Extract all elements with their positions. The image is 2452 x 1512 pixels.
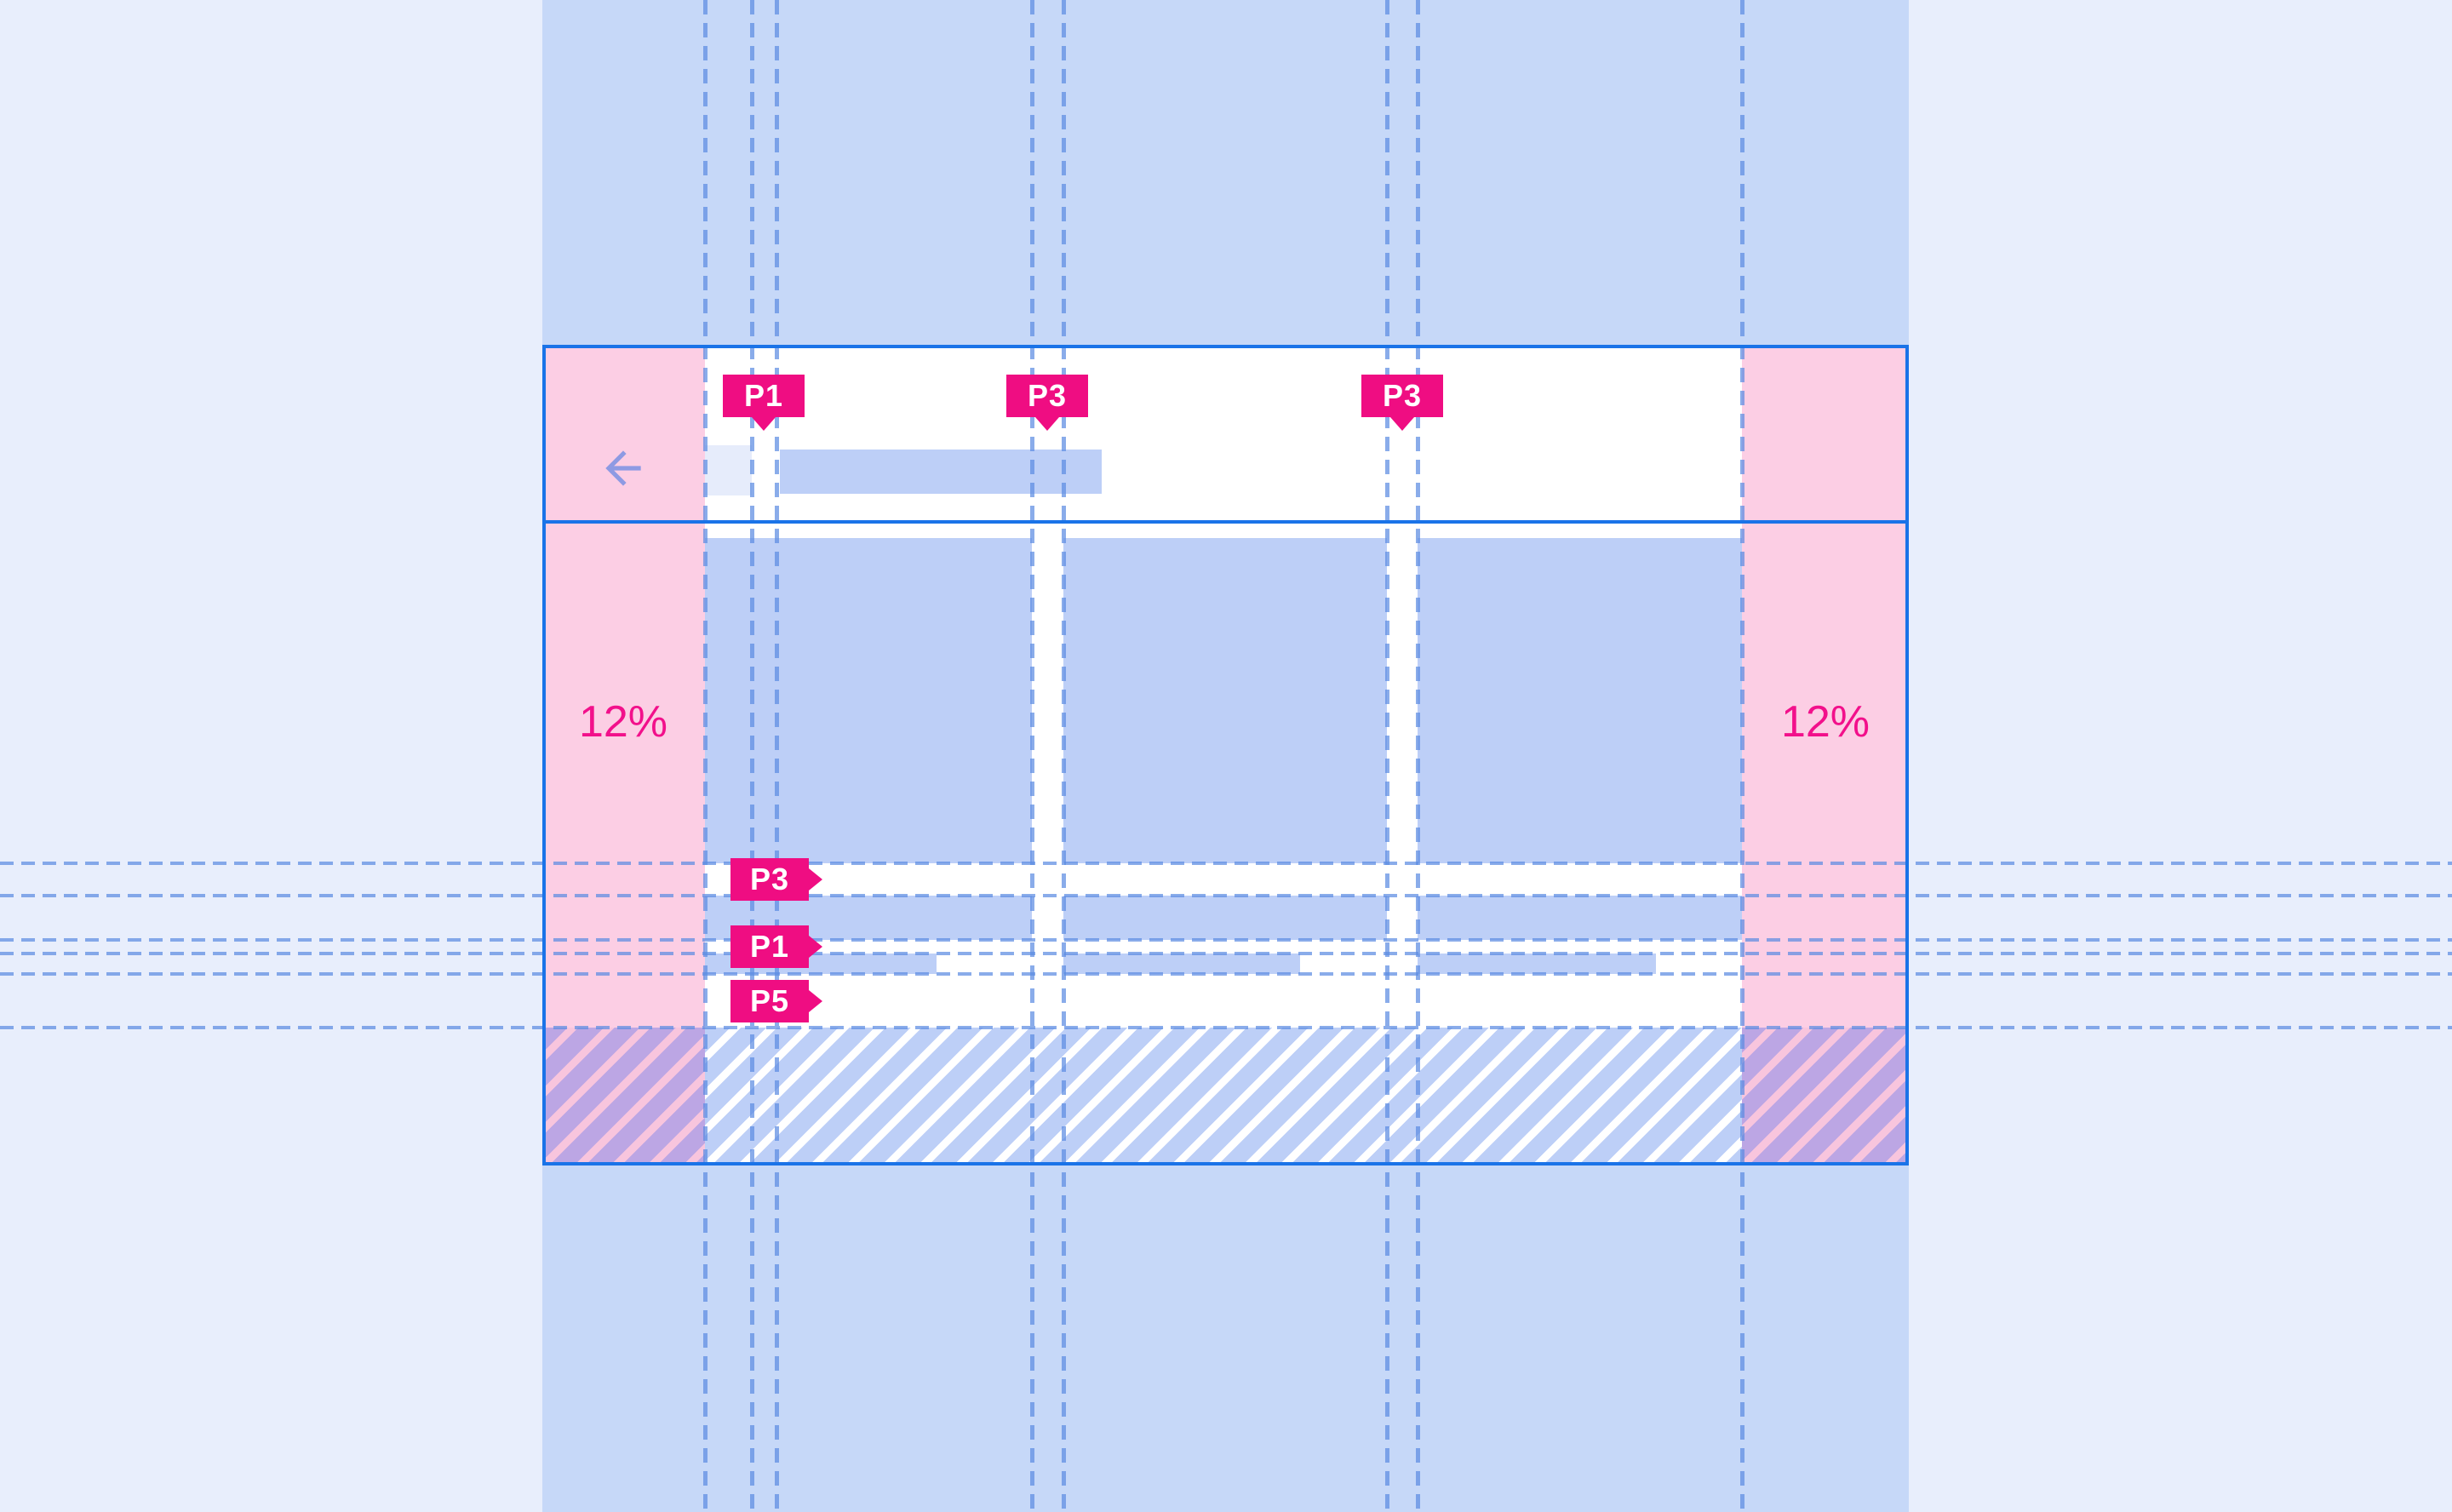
title-placeholder [780, 450, 1102, 494]
vertical-guide-icon-end [750, 0, 754, 1512]
content-card-placeholder-3 [1418, 538, 1742, 863]
left-margin-percent-label: 12% [579, 696, 667, 747]
content-card-placeholder-2 [1063, 538, 1387, 863]
layout-spec-canvas: 12% 12% P1 P3 P3 P3 P1 P5 [0, 0, 2452, 1512]
vertical-guide-margin-right [1740, 0, 1744, 1512]
padding-annotation-p5-row: P5 [730, 980, 809, 1022]
padding-annotation-p3-row: P3 [730, 858, 809, 901]
vertical-guide-title-start [775, 0, 779, 1512]
text-line-placeholder [1418, 954, 1656, 974]
horizontal-guide-bar2-bottom [0, 972, 2452, 976]
horizontal-guide-cards-bottom [0, 862, 2452, 865]
text-line-placeholder [1418, 896, 1742, 940]
padding-annotation-p3-gutter2: P3 [1361, 375, 1443, 417]
text-line-placeholder [1063, 896, 1387, 940]
back-button[interactable] [596, 441, 650, 495]
text-line-placeholder [1063, 954, 1300, 974]
padding-annotation-p1-row: P1 [730, 925, 809, 968]
horizontal-guide-bar1-bottom [0, 938, 2452, 942]
padding-annotation-p3-gutter1: P3 [1006, 375, 1088, 417]
footer-hatched-margin-left [542, 1028, 705, 1165]
horizontal-guide-bar1-top [0, 894, 2452, 897]
arrow-back-icon [597, 442, 650, 495]
vertical-guide-gutter1-right [1062, 0, 1066, 1512]
footer-hatched-area [705, 1028, 1742, 1165]
right-margin-percent-label: 12% [1781, 696, 1870, 747]
leading-icon-placeholder [705, 445, 752, 495]
appbar-divider [542, 520, 1909, 524]
vertical-guide-gutter2-left [1385, 0, 1389, 1512]
padding-annotation-p1-top: P1 [723, 375, 805, 417]
vertical-guide-margin-left [703, 0, 708, 1512]
footer-hatched-margin-right [1742, 1028, 1909, 1165]
horizontal-guide-footer-top [0, 1026, 2452, 1029]
vertical-guide-gutter1-left [1030, 0, 1034, 1512]
device-frame: 12% 12% [542, 345, 1909, 1165]
horizontal-guide-bar2-top [0, 952, 2452, 955]
vertical-guide-gutter2-right [1416, 0, 1420, 1512]
